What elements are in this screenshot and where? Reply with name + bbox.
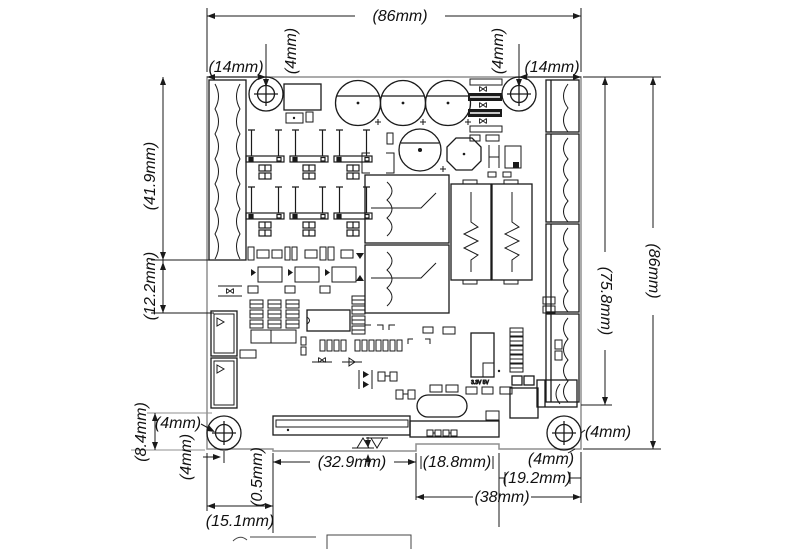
- dim-bottom-connector-width: (32.9mm): [318, 454, 386, 471]
- dim-bottom-left-edge: (15.1mm): [206, 513, 274, 530]
- below-board-partial-outlines: [233, 535, 411, 549]
- silkscreen-voltage-label: 3.3V 5V: [471, 380, 489, 386]
- dim-hole-offset-bottom-right-y: (4mm): [528, 451, 574, 468]
- electrolytic-capacitors: [336, 81, 482, 173]
- dim-hole-dia-top-right: (4mm): [490, 28, 507, 74]
- board-outline: [207, 77, 581, 451]
- dim-left-terminal-span: (41.9mm): [142, 142, 159, 210]
- dim-bottom-edge-step: (0.5mm): [249, 447, 266, 507]
- dim-bottom-left-inset: (8.4mm): [133, 402, 150, 462]
- dim-hole-offset-bottom-left-x: (4mm): [155, 415, 201, 432]
- mounting-hole-bottom-right: [547, 416, 581, 450]
- dim-board-width-top: (86mm): [372, 8, 427, 25]
- dim-left-section: (12.2mm): [142, 252, 159, 320]
- mid-board-passives: [218, 247, 402, 366]
- left-terminal-block: [209, 80, 246, 260]
- to220-transistors: [246, 130, 372, 236]
- dimension-annotations: (86mm) (14mm) (4mm) (4mm) (14mm) (41.9mm…: [131, 8, 662, 533]
- dim-bottom-right-total: (38mm): [474, 489, 529, 506]
- dim-hole-dia-top-left: (4mm): [283, 28, 300, 74]
- relays: [365, 175, 449, 313]
- lower-right-cluster: 3.3V 5V: [359, 297, 562, 418]
- dim-hole-offset-top-right: (14mm): [524, 59, 579, 76]
- dim-right-terminal-span: (75.8mm): [597, 267, 614, 335]
- power-resistors: [451, 180, 532, 284]
- drawing-canvas: 3.3V 5V (86mm) (14mm) (4mm) (4mm) (14mm): [0, 0, 800, 550]
- dim-bottom-right-section: (19.2mm): [503, 470, 571, 487]
- dip-ic: [307, 310, 350, 331]
- pcb-dimensional-drawing: 3.3V 5V (86mm) (14mm) (4mm) (4mm) (14mm): [0, 0, 800, 550]
- pin-header: [510, 388, 538, 418]
- right-terminal-blocks: [537, 80, 579, 407]
- dim-bottom-mid-section: (18.8mm): [423, 454, 491, 471]
- mounting-holes: [207, 77, 581, 450]
- crystal-oscillator: [417, 395, 467, 417]
- dim-hole-offset-top-left: (14mm): [208, 59, 263, 76]
- fuse-links: [427, 430, 457, 436]
- bottom-edge-connectors: [273, 411, 499, 448]
- aux-terminal-block: [537, 380, 577, 407]
- dim-board-height-right: (86mm): [645, 243, 662, 298]
- dim-hole-offset-bottom-left-y: (4mm): [178, 434, 195, 480]
- mounting-hole-bottom-left: [207, 416, 241, 450]
- dim-hole-offset-bottom-right-x: (4mm): [585, 424, 631, 441]
- left-edge-connectors: [211, 311, 237, 408]
